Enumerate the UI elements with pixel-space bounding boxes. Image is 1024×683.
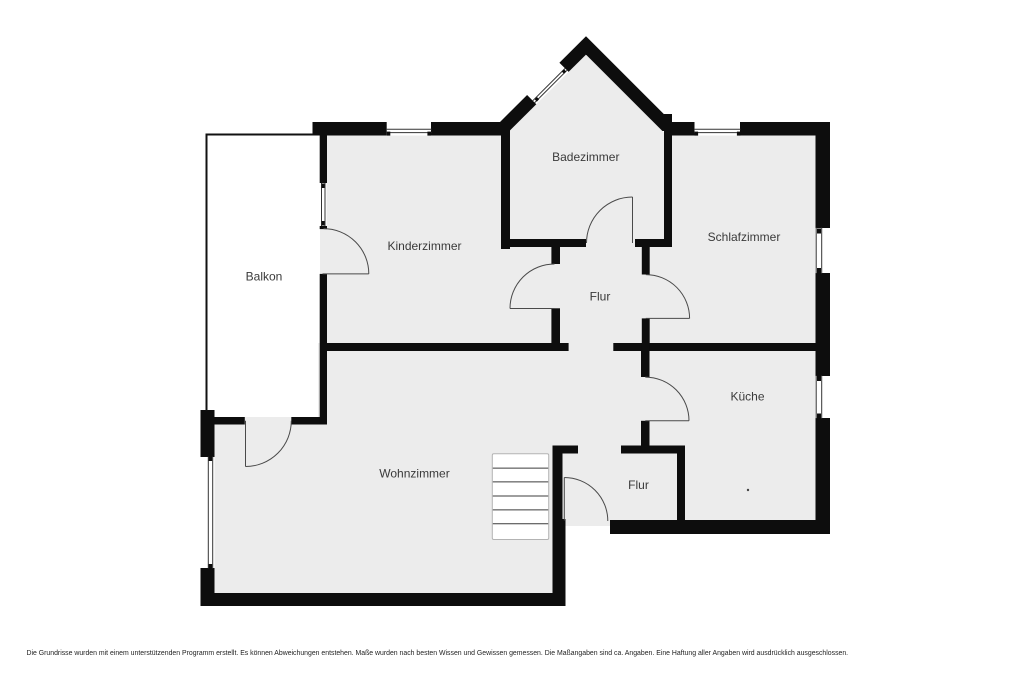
svg-text:Badezimmer: Badezimmer: [552, 150, 619, 164]
svg-text:Wohnzimmer: Wohnzimmer: [379, 467, 449, 481]
svg-text:Flur: Flur: [628, 478, 649, 492]
svg-text:Flur: Flur: [590, 290, 611, 304]
svg-text:Balkon: Balkon: [246, 270, 283, 284]
svg-text:Kinderzimmer: Kinderzimmer: [387, 239, 461, 253]
svg-text:Küche: Küche: [730, 390, 764, 404]
svg-text:Die Grundrisse wurden mit eine: Die Grundrisse wurden mit einem unterstü…: [27, 650, 849, 657]
svg-text:Schlafzimmer: Schlafzimmer: [708, 230, 781, 244]
